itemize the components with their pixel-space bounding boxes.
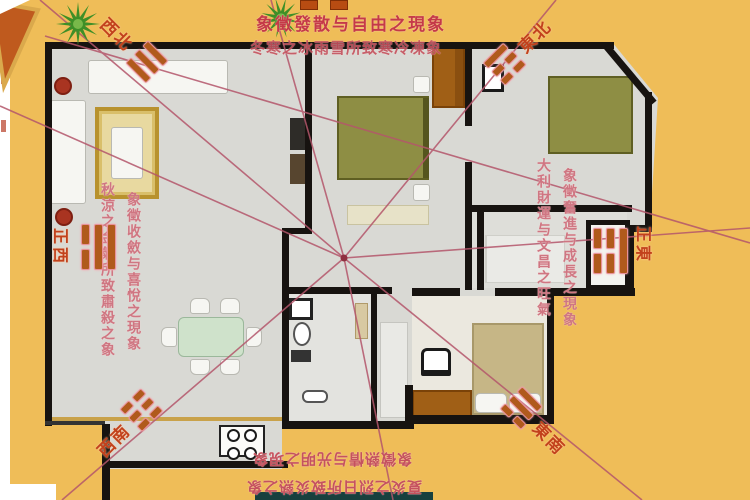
annotation-left-col1: 秋涼之金氣所致肅殺之象 bbox=[98, 182, 118, 372]
stove-burner bbox=[244, 429, 257, 442]
annotation-right-col2: 象徵奮進与成長之現象 bbox=[560, 168, 580, 356]
dining-chair bbox=[220, 359, 240, 375]
wall-corridor-left bbox=[477, 212, 484, 290]
wall-living-bottom-thin bbox=[45, 421, 105, 425]
dining-chair bbox=[190, 298, 210, 314]
bed-top-right bbox=[548, 76, 633, 154]
dining-chair bbox=[161, 327, 177, 347]
annotation-right-col1: 大利財運与文昌之旺氣 bbox=[534, 158, 554, 350]
sofa-vertical bbox=[50, 100, 86, 204]
wall-living-right-lower bbox=[282, 228, 289, 428]
wall-bedroom-br-top bbox=[412, 288, 460, 296]
stove-burner bbox=[227, 447, 240, 460]
left-edge-mark bbox=[1, 120, 6, 132]
wall-centerbed-right-b bbox=[465, 162, 472, 290]
armchair bbox=[421, 348, 451, 376]
tall-cabinet bbox=[355, 303, 368, 339]
trigram-zhen-icon bbox=[593, 228, 628, 274]
wall-stub bbox=[405, 385, 413, 419]
dresser bbox=[412, 390, 472, 417]
wall-bath-bottom bbox=[282, 421, 414, 429]
dining-chair bbox=[246, 327, 262, 347]
bed-center bbox=[337, 96, 429, 180]
direction-label: 東南 bbox=[528, 415, 573, 460]
nightstand bbox=[413, 76, 430, 93]
wall-bath-divider bbox=[371, 293, 377, 423]
stove-burner bbox=[227, 429, 240, 442]
annotation-top-line2: 冬寒之冰雨雪所致寒冷凍象 bbox=[250, 37, 442, 58]
direction-label: 正西 bbox=[50, 228, 74, 266]
toilet bbox=[293, 322, 311, 346]
cropped-badge bbox=[300, 0, 318, 10]
bathtub-faucet bbox=[302, 390, 328, 403]
cropped-badge bbox=[330, 0, 348, 10]
annotation-bottom-line2: 夏炎之烈日所致炎熱之象 bbox=[246, 477, 422, 498]
trigram-dui-icon bbox=[81, 224, 116, 270]
bottom-left-white-strip bbox=[0, 484, 56, 500]
annotation-bottom-line1: 象徵熱情与光明之現象 bbox=[252, 449, 412, 470]
nightstand bbox=[413, 184, 430, 201]
shower-closet bbox=[380, 322, 408, 418]
wall-living-right-upper bbox=[305, 42, 312, 234]
direction-marker-east bbox=[593, 228, 628, 274]
annotation-top-line1: 象徵發散与自由之現象 bbox=[256, 10, 446, 35]
fengshui-floorplan-image: 象徵發散与自由之現象 冬寒之冰雨雪所致寒冷凍象 秋涼之金氣所致肅殺之象 象徵收斂… bbox=[0, 0, 750, 500]
direction-marker-west: 正西 bbox=[50, 224, 116, 270]
bed-center-headboard bbox=[423, 98, 429, 178]
tv-appliance bbox=[290, 118, 305, 150]
dining-chair bbox=[190, 359, 210, 375]
wall-right-upper bbox=[645, 92, 652, 232]
compass-fragment-icon bbox=[0, 0, 60, 100]
bathroom-cabinet-dark bbox=[291, 350, 311, 362]
kitchen-appliance bbox=[290, 154, 305, 184]
dining-table bbox=[178, 317, 244, 357]
coffee-table bbox=[111, 127, 143, 179]
bathroom-vanity bbox=[289, 298, 313, 320]
dining-chair bbox=[220, 298, 240, 314]
annotation-left-col2: 象徵收斂与喜悅之現象 bbox=[124, 192, 144, 377]
wall-centerbed-right-a bbox=[465, 42, 472, 126]
bed-bench bbox=[347, 205, 429, 225]
direction-marker-east-label: 正東 bbox=[633, 226, 657, 264]
